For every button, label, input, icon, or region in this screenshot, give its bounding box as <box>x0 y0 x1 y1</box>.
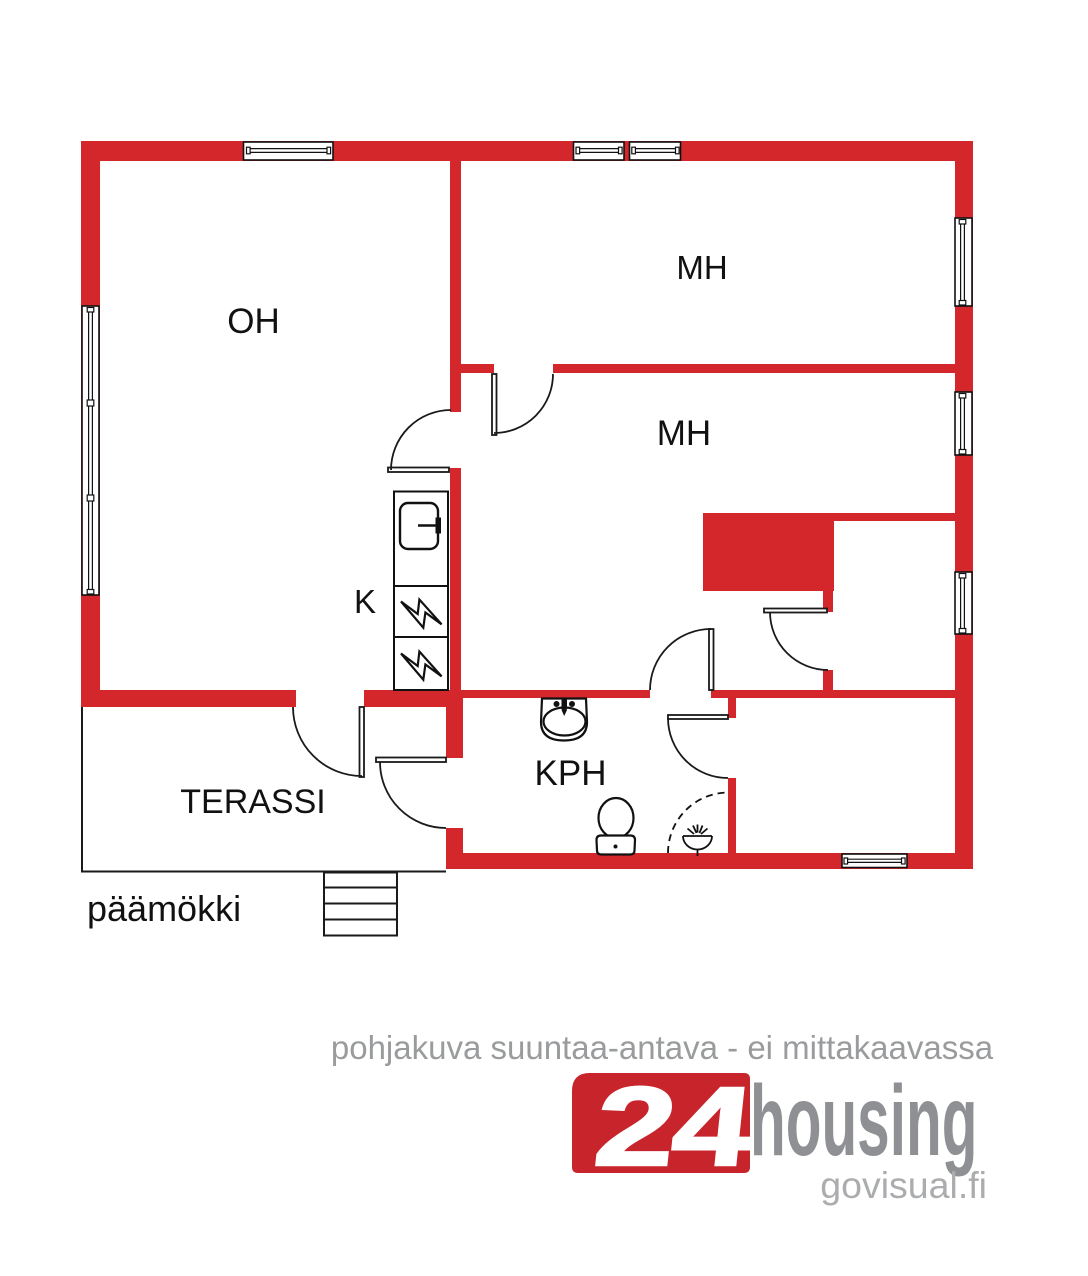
svg-text:MH: MH <box>657 414 711 453</box>
svg-text:24: 24 <box>589 1064 758 1189</box>
svg-text:govisual.fi: govisual.fi <box>820 1164 987 1206</box>
svg-text:päämökki: päämökki <box>87 888 241 929</box>
svg-text:TERASSI: TERASSI <box>180 783 325 821</box>
svg-text:MH: MH <box>676 249 727 286</box>
svg-text:OH: OH <box>227 302 280 341</box>
svg-text:K: K <box>354 583 376 620</box>
svg-text:housing: housing <box>750 1066 977 1177</box>
svg-text:pohjakuva suuntaa-antava - ei: pohjakuva suuntaa-antava - ei mittakaava… <box>331 1029 994 1066</box>
svg-text:KPH: KPH <box>535 754 607 793</box>
